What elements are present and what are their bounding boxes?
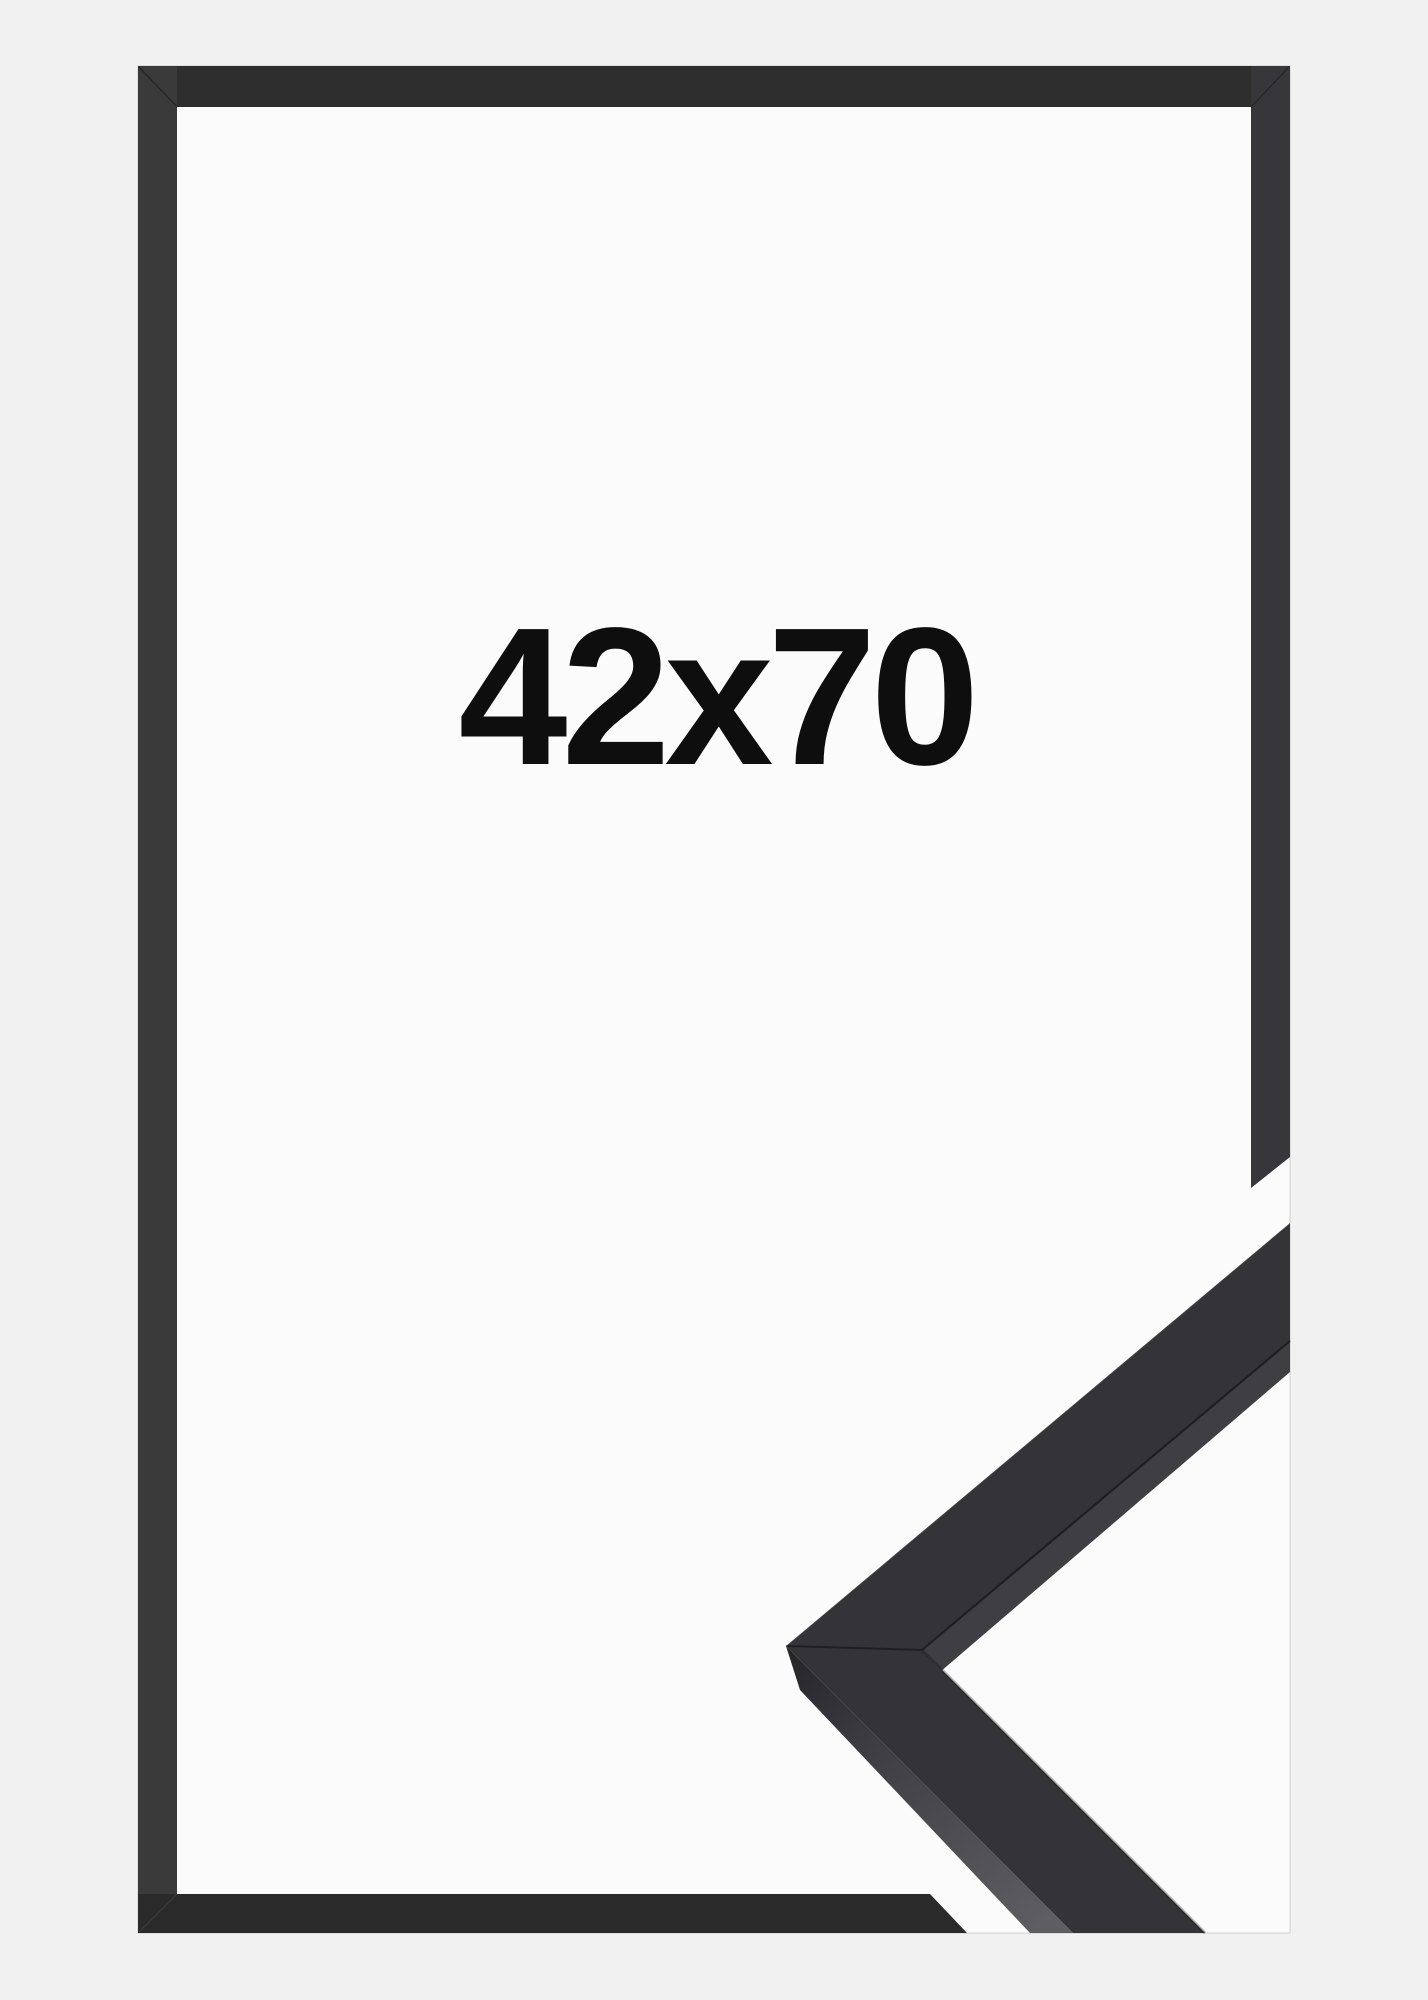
frame-bar-bottom	[138, 1894, 967, 1933]
frame-bar-right	[1251, 66, 1290, 1188]
product-photo: 42x70	[0, 0, 1428, 2000]
frame-bar-top	[138, 66, 1290, 107]
frame-bar-left	[138, 66, 177, 1933]
size-label: 42x70	[458, 599, 973, 795]
frame-backing	[138, 66, 1290, 1933]
frame-photo-graphic	[0, 0, 1428, 2000]
